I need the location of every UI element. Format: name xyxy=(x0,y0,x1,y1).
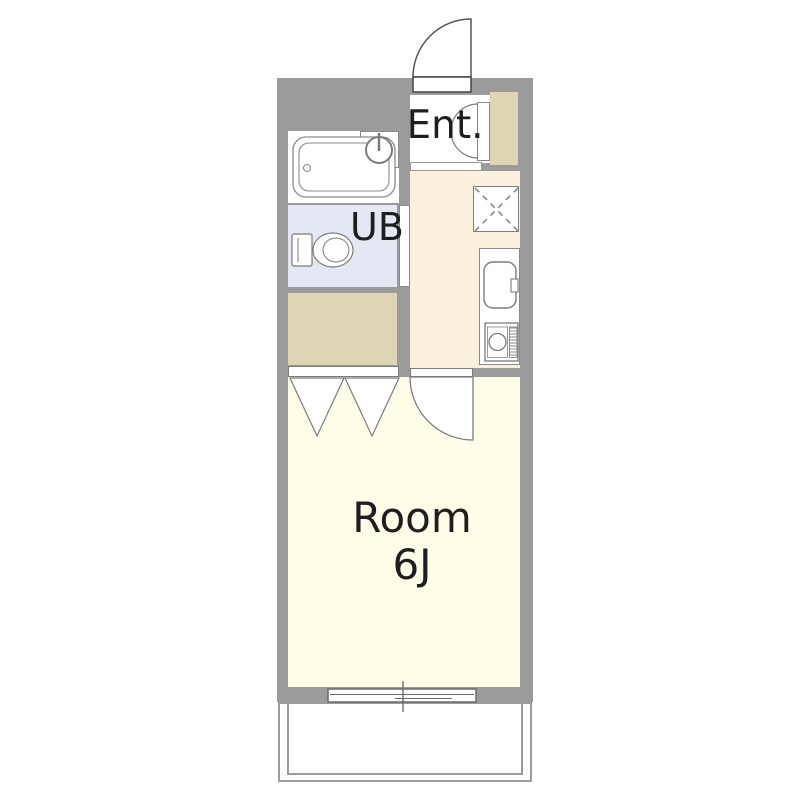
room-name-text: Room xyxy=(338,494,486,541)
closet-area xyxy=(288,293,397,365)
unit-bath-label: UB xyxy=(350,205,404,249)
entrance-label: Ent. xyxy=(403,103,487,148)
kitchen-counter xyxy=(479,248,520,365)
balcony-railing-line xyxy=(287,702,523,775)
floor-plan: Ent. UB Room 6J xyxy=(0,0,800,800)
room-label: Room 6J xyxy=(338,494,486,588)
closet-bifold-door xyxy=(288,366,399,377)
building-walls xyxy=(277,78,533,702)
refrigerator-space xyxy=(473,186,519,232)
room-size-text: 6J xyxy=(338,541,486,588)
washbasin-box xyxy=(360,131,399,168)
entrance-step xyxy=(410,162,482,171)
shoe-storage-area xyxy=(490,92,518,165)
room-door-leaf xyxy=(410,368,473,377)
